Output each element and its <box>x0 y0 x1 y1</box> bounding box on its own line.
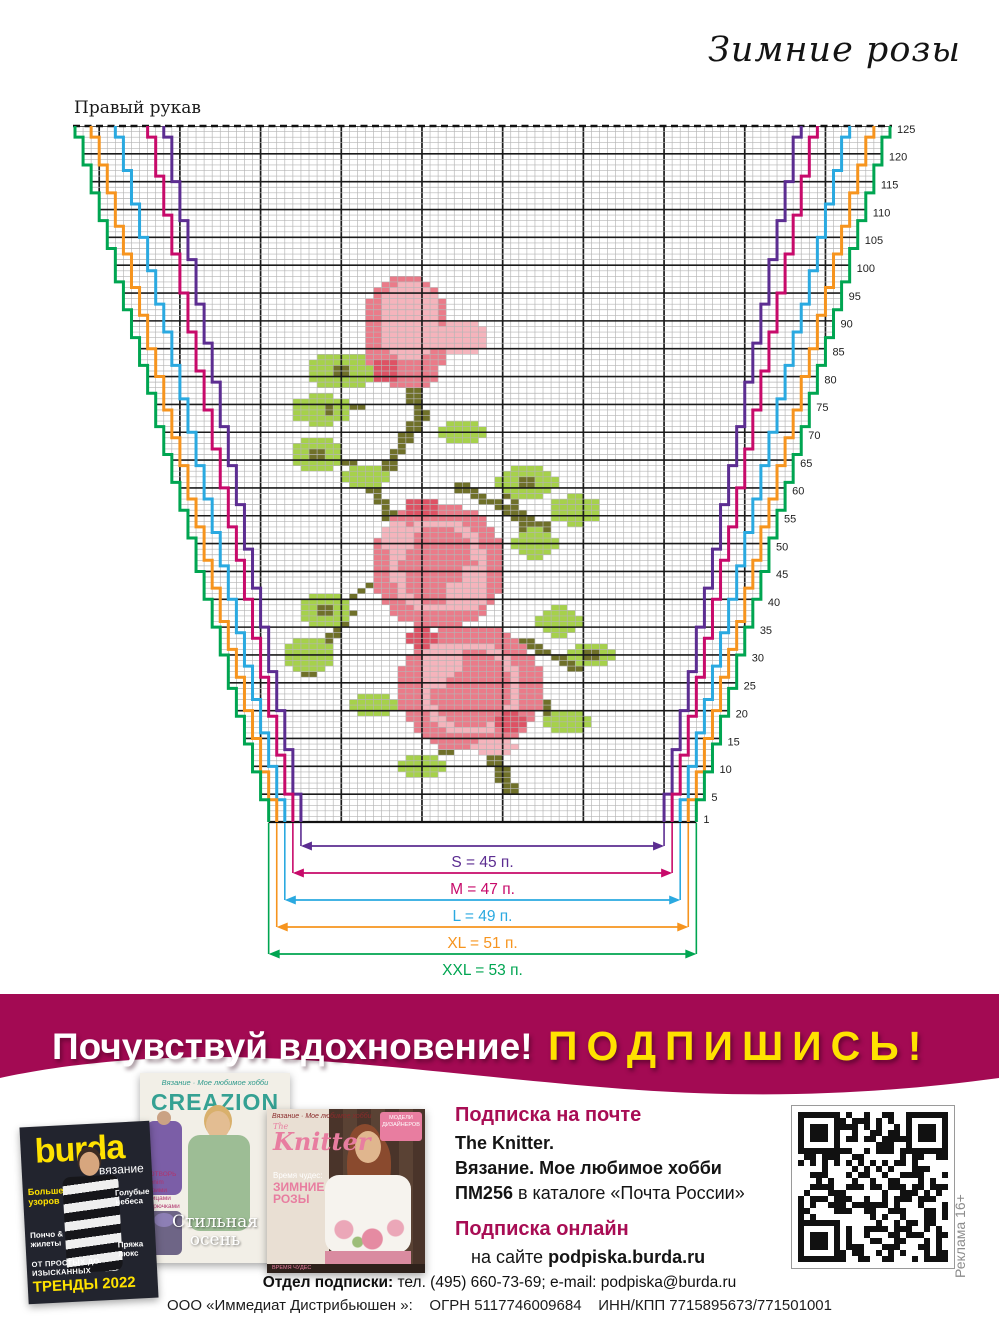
banner-headline: Почувствуй вдохновение! <box>52 1026 533 1068</box>
svg-text:65: 65 <box>800 458 812 470</box>
magazine-cover-the-knitter: Вязание · Мое любимое хобби TheKnitter М… <box>267 1109 425 1273</box>
svg-text:120: 120 <box>889 152 907 164</box>
footer-company-line: ООО «Иммедиат Дистрибьюшен »: ОГРН 51177… <box>0 1297 999 1314</box>
svg-text:XXL = 53 п.: XXL = 53 п. <box>442 962 523 979</box>
knitting-chart: S = 45 п.M = 47 п.L = 49 п.XL = 51 п.XXL… <box>0 0 999 990</box>
svg-text:30: 30 <box>752 653 764 665</box>
svg-text:50: 50 <box>776 541 788 553</box>
subscription-magazine-1: The Knitter. <box>455 1131 785 1156</box>
magazine-cover-burda: burda вязание Больше узоров Пончо & жиле… <box>19 1121 158 1305</box>
svg-text:1: 1 <box>703 814 709 826</box>
subscription-magazine-2: Вязание. Мое любимое хобби <box>455 1156 785 1181</box>
svg-text:20: 20 <box>736 708 748 720</box>
svg-text:105: 105 <box>865 235 883 247</box>
svg-text:85: 85 <box>832 347 844 359</box>
svg-text:L = 49 п.: L = 49 п. <box>453 908 513 925</box>
svg-text:5: 5 <box>711 792 717 804</box>
svg-text:90: 90 <box>841 319 853 331</box>
svg-text:115: 115 <box>881 179 899 191</box>
svg-text:60: 60 <box>792 486 804 498</box>
svg-text:100: 100 <box>857 263 875 275</box>
burda-coverline-2: Пончо & жилеты <box>30 1229 71 1249</box>
svg-text:55: 55 <box>784 514 796 526</box>
banner-cta-subscribe: ПОДПИШИСЬ! <box>548 1023 930 1070</box>
svg-text:15: 15 <box>728 736 740 748</box>
knitter-rose-sweater <box>325 1175 411 1253</box>
svg-text:75: 75 <box>816 402 828 414</box>
subscription-info: Подписка на почте The Knitter. Вязание. … <box>455 1104 785 1270</box>
knitter-tagline: Вязание · Мое любимое хобби <box>272 1113 372 1120</box>
knitter-bottom-strip: ВРЕМЯ ЧУДЕС <box>267 1264 425 1273</box>
svg-text:25: 25 <box>744 681 756 693</box>
svg-text:125: 125 <box>897 124 915 136</box>
knitter-headline: ЗИМНИЕ РОЗЫ <box>273 1181 324 1205</box>
knitter-logo: TheKnitter <box>273 1122 371 1153</box>
knitter-accent-text: Время чудес: <box>273 1171 323 1180</box>
burda-coverline-3: Голубые небеса <box>115 1187 150 1207</box>
qr-code <box>791 1105 955 1269</box>
ad-age-rating-note: Реклама 16+ <box>952 1128 968 1278</box>
svg-text:95: 95 <box>849 291 861 303</box>
burda-model-head <box>79 1151 100 1176</box>
subscription-post-title: Подписка на почте <box>455 1104 785 1127</box>
knitter-pink-skirt <box>325 1251 411 1265</box>
svg-text:110: 110 <box>873 207 891 219</box>
burda-coverline-1: Больше узоров <box>28 1185 69 1207</box>
svg-text:M = 47 п.: M = 47 п. <box>450 881 515 898</box>
svg-text:45: 45 <box>776 569 788 581</box>
subscription-online-title: Подписка онлайн <box>455 1218 785 1241</box>
knitter-badge: МОДЕЛИ ДИЗАЙНЕРОВ <box>380 1112 422 1141</box>
subscription-catalog-code: ПМ256 в каталоге «Почта России» <box>455 1181 785 1206</box>
svg-text:80: 80 <box>824 374 836 386</box>
svg-text:40: 40 <box>768 597 780 609</box>
burda-coverline-5: ОТ ПРОСТЫХ ДО ИЗЫСКАННЫХ <box>31 1254 157 1279</box>
creazion-tagline: Вязание · Мое любимое хобби <box>140 1078 290 1087</box>
svg-text:S = 45 п.: S = 45 п. <box>451 854 513 871</box>
svg-text:XL = 51 п.: XL = 51 п. <box>447 935 517 952</box>
svg-text:35: 35 <box>760 625 772 637</box>
svg-text:70: 70 <box>808 430 820 442</box>
svg-text:10: 10 <box>719 764 731 776</box>
subscription-online-site: на сайте podpiska.burda.ru <box>455 1245 785 1270</box>
